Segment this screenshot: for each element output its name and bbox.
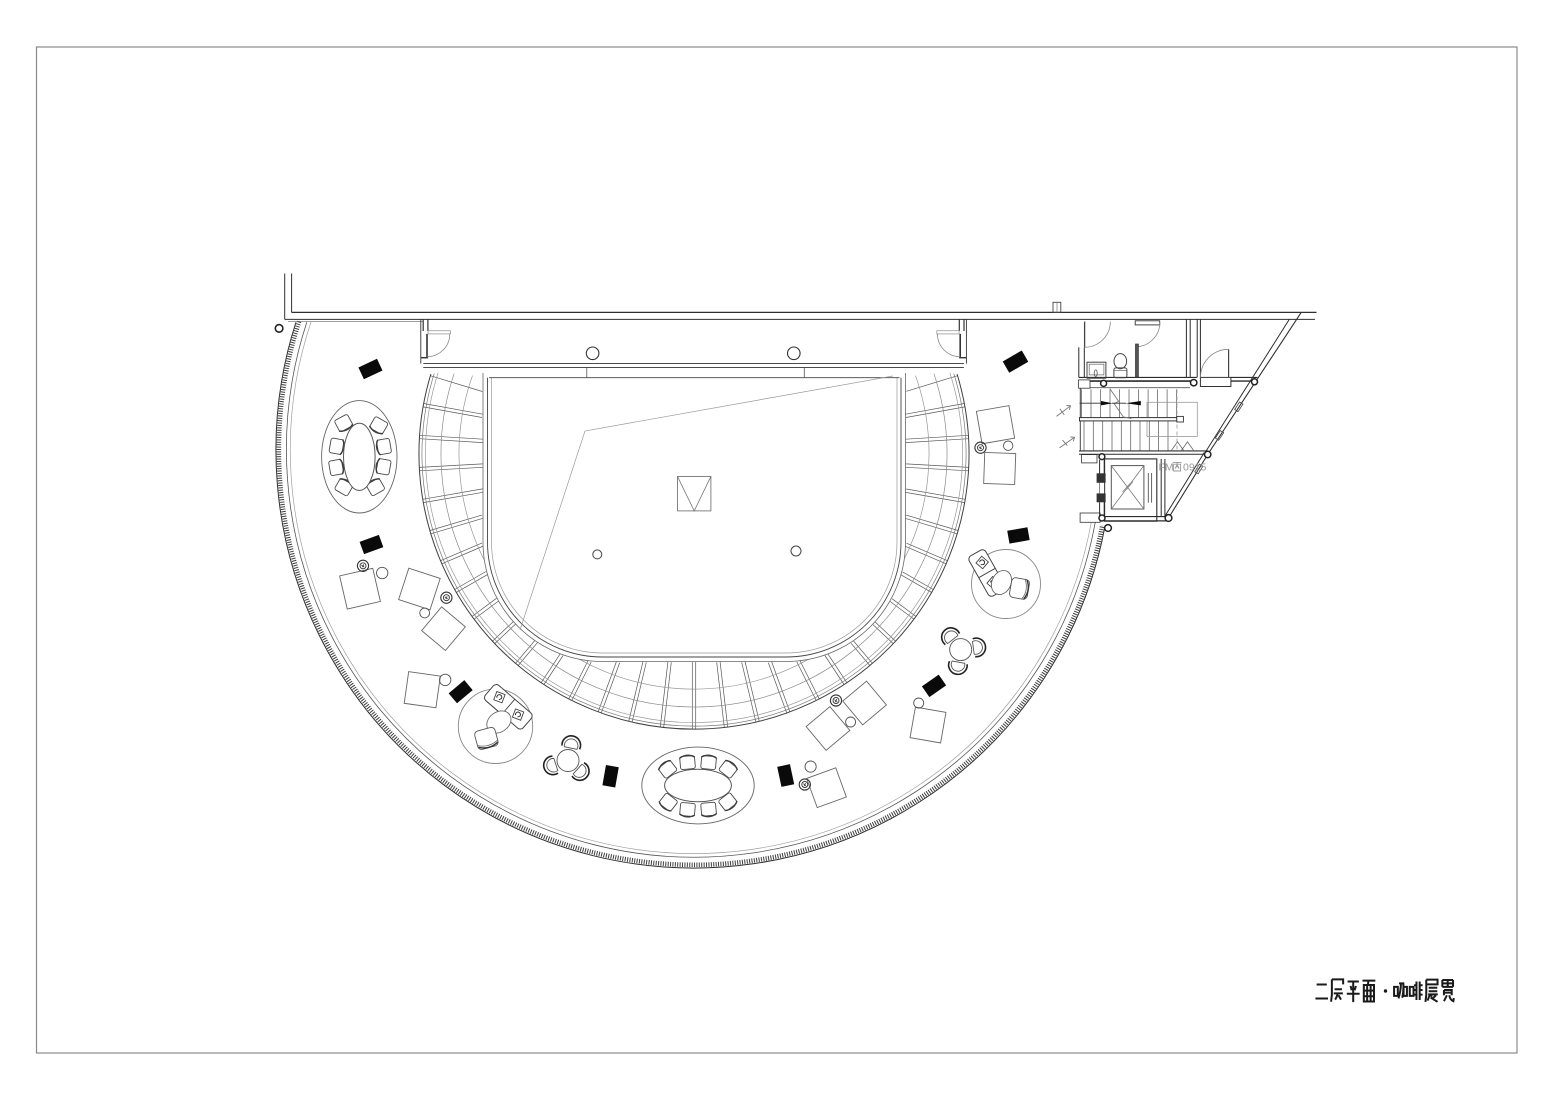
svg-text:0915: 0915 [1183, 462, 1207, 474]
svg-text:FM: FM [1159, 462, 1174, 474]
